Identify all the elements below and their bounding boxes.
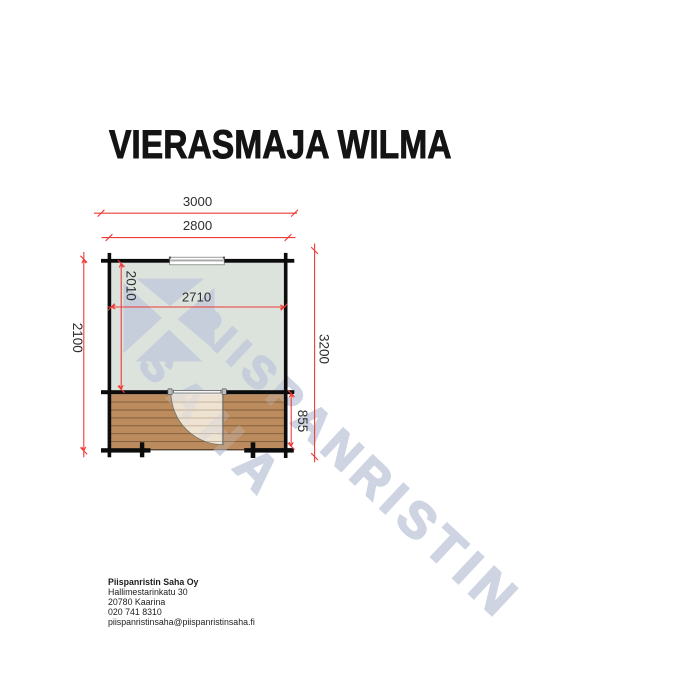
svg-text:piispanristinsaha@piispanristi: piispanristinsaha@piispanristinsaha.fi: [108, 617, 255, 627]
svg-text:2800: 2800: [183, 218, 212, 233]
svg-text:2010: 2010: [123, 271, 138, 301]
svg-text:3000: 3000: [183, 194, 212, 209]
svg-text:3200: 3200: [317, 334, 332, 364]
svg-text:2100: 2100: [70, 323, 85, 353]
svg-text:Piispanristin Saha Oy: Piispanristin Saha Oy: [108, 577, 199, 587]
svg-text:Hallimestarinkatu 30: Hallimestarinkatu 30: [108, 587, 188, 597]
svg-text:20780 Kaarina: 20780 Kaarina: [108, 597, 165, 607]
svg-text:020 741 8310: 020 741 8310: [108, 607, 162, 617]
svg-text:2710: 2710: [182, 290, 211, 305]
svg-text:855: 855: [295, 410, 310, 433]
svg-text:VIERASMAJA WILMA: VIERASMAJA WILMA: [109, 123, 452, 167]
